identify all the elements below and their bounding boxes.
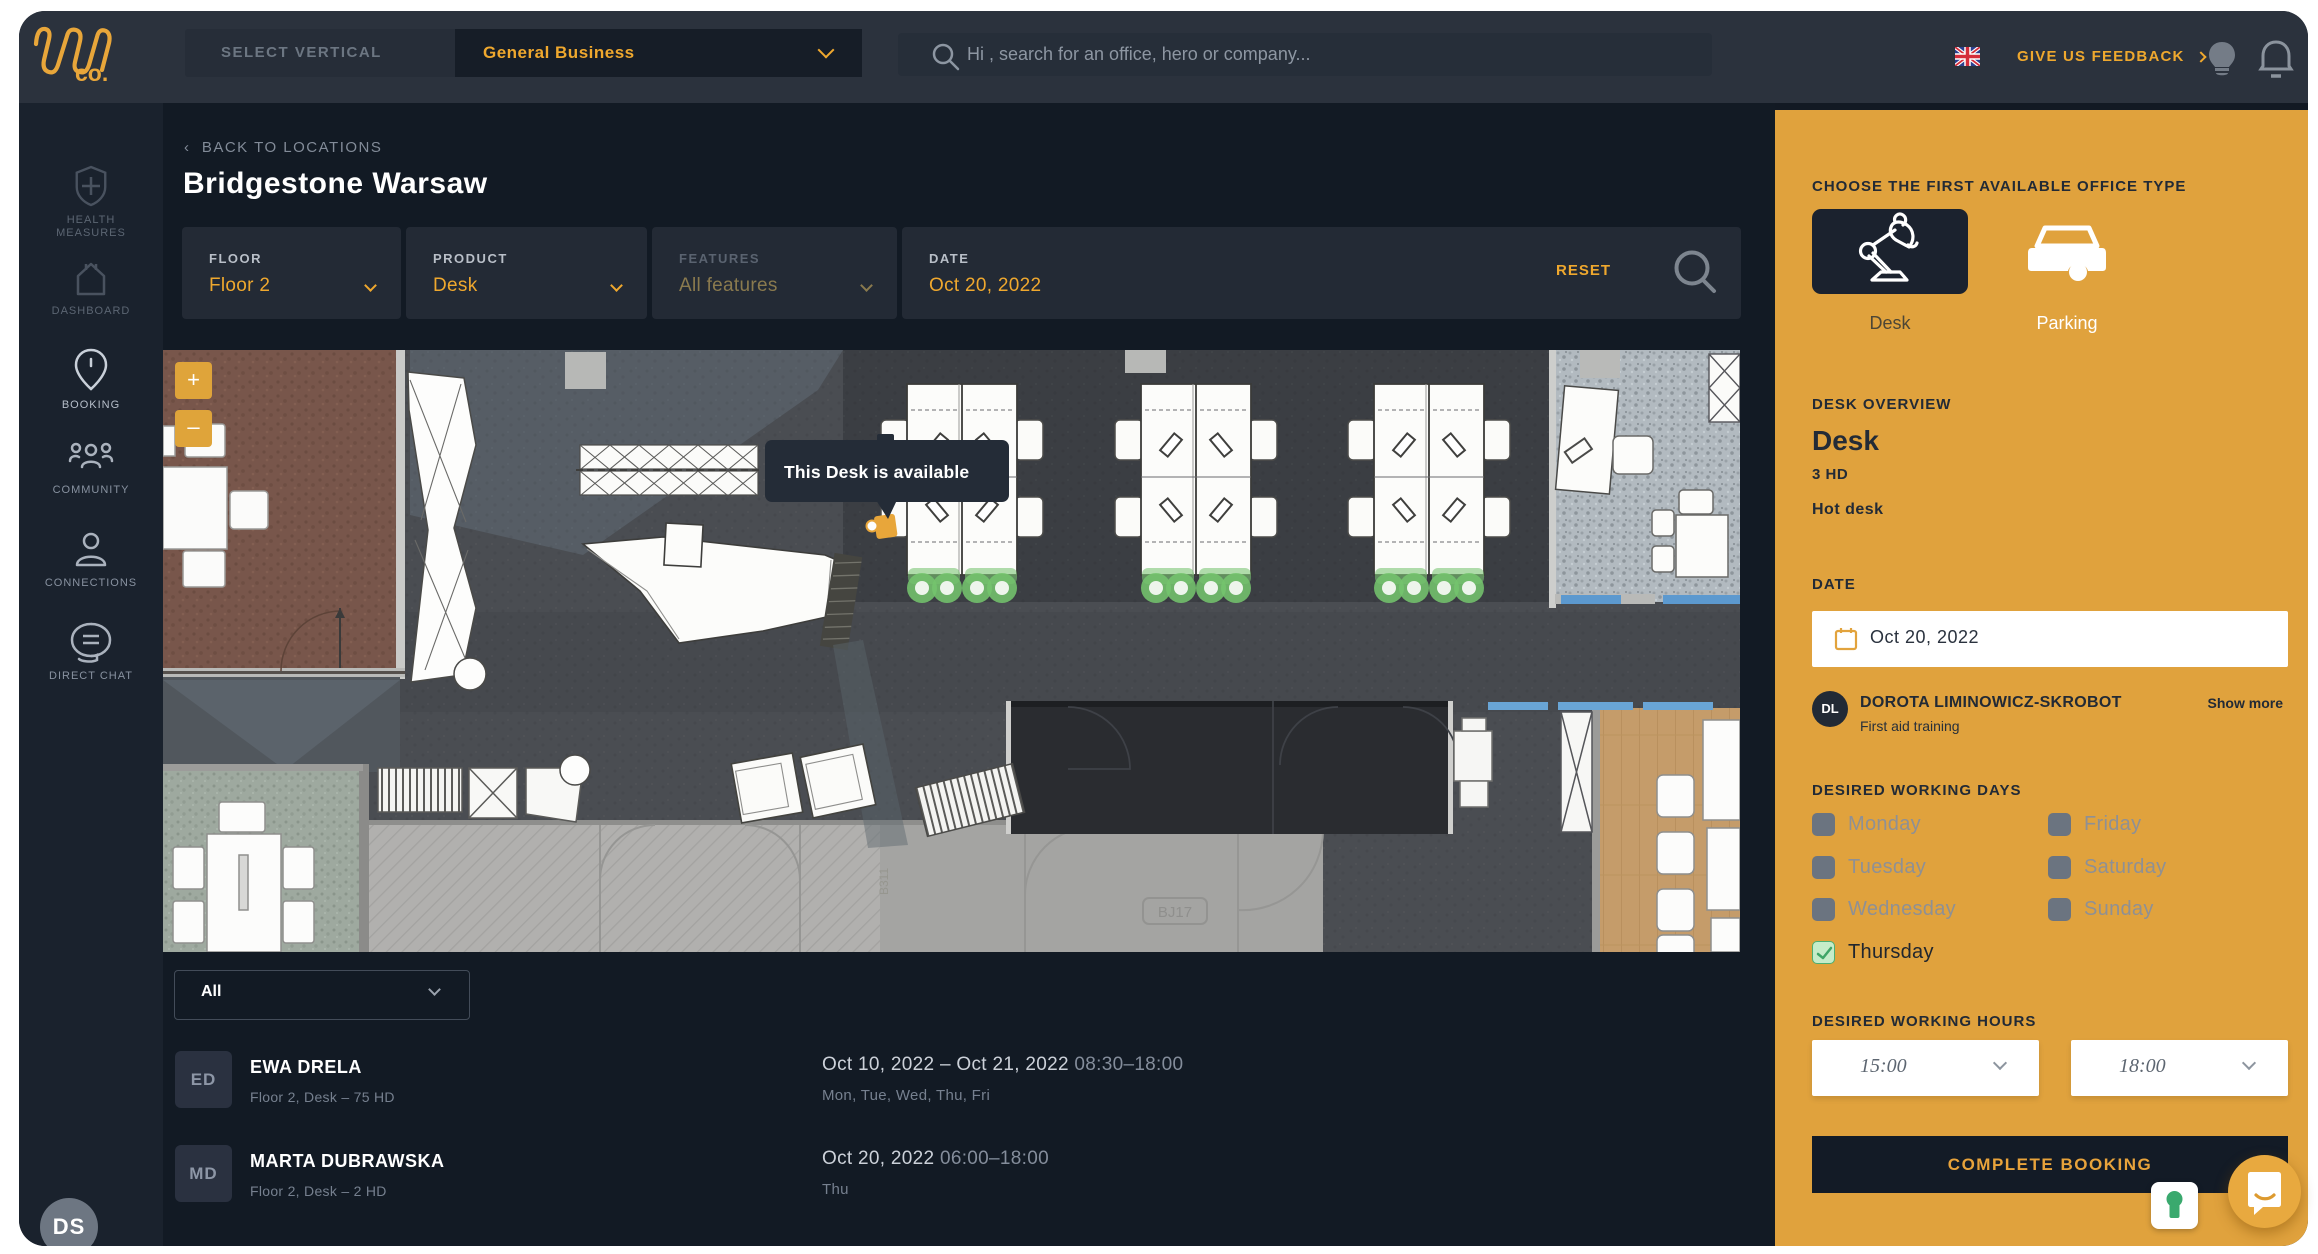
svg-text:BJ17: BJ17 [1158,904,1192,921]
svg-text:This Desk is available: This Desk is available [784,462,969,482]
svg-text:B311: B311 [877,868,891,895]
svg-text:co.: co. [75,60,108,84]
